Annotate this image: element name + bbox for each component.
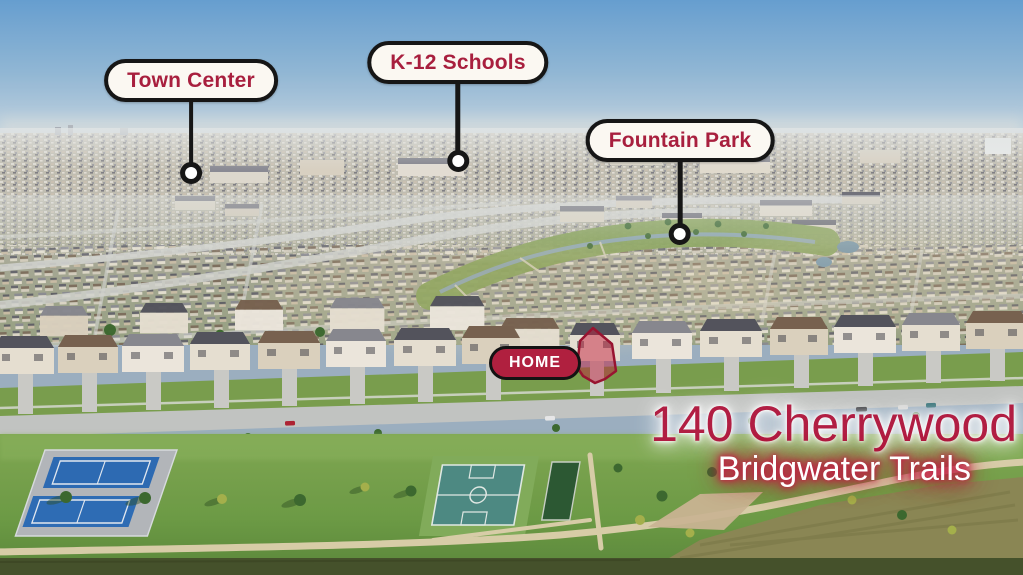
callout-pill: Town Center — [104, 59, 278, 102]
callout-label: Fountain Park — [609, 129, 752, 152]
map-pin-dot — [669, 223, 691, 245]
callout-connector-line — [189, 101, 194, 163]
callout-label: K-12 Schools — [390, 51, 525, 74]
real-estate-aerial-image: .roofA{fill:#55555d}.roofB{fill:#7a6450}… — [0, 0, 1023, 575]
callout-town-center: Town Center — [104, 59, 278, 184]
callout-pill: K-12 Schools — [367, 41, 548, 84]
home-badge: HOME — [489, 346, 581, 380]
callout-connector-line — [678, 161, 683, 224]
callout-label: Town Center — [127, 69, 255, 92]
callout-fountain-park: Fountain Park — [586, 119, 775, 245]
address-overlay: 140 Cherrywood Bridgwater Trails — [650, 399, 1017, 488]
callout-connector-line — [456, 83, 461, 151]
address-street: 140 Cherrywood — [650, 399, 1017, 449]
map-pin-dot — [447, 150, 469, 172]
callout-k12-schools: K-12 Schools — [367, 41, 548, 172]
callout-pill: Fountain Park — [586, 119, 775, 162]
address-community: Bridgwater Trails — [650, 452, 971, 488]
map-pin-dot — [180, 162, 202, 184]
